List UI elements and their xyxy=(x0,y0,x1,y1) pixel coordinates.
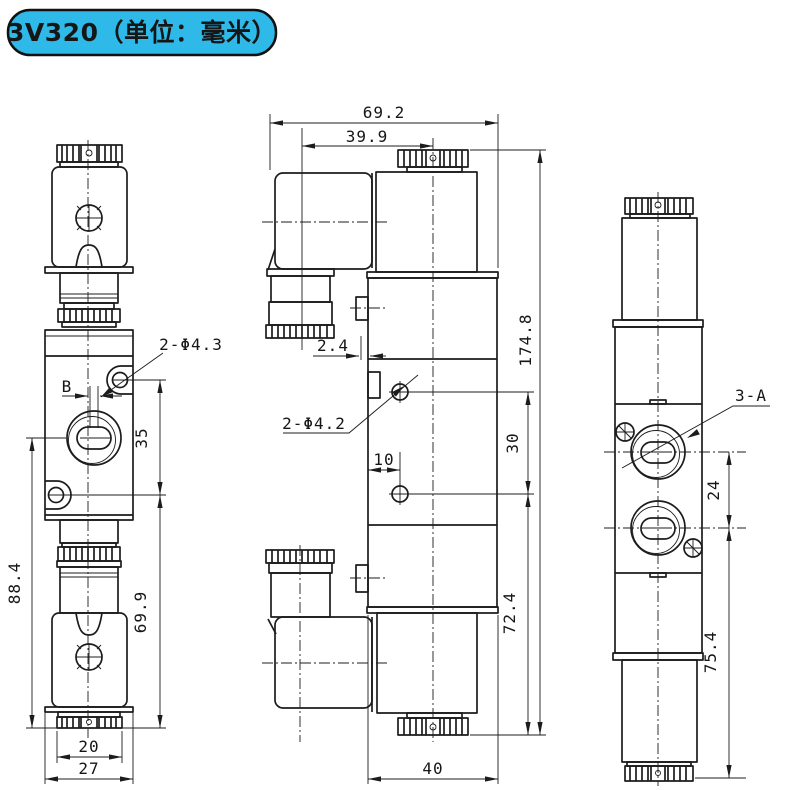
technical-drawing: 3V320（单位：毫米） xyxy=(0,0,790,790)
port-front xyxy=(67,411,121,465)
dim-side-2-4: 2.4 xyxy=(317,336,349,355)
bottom-cap-ribs xyxy=(62,717,116,728)
page-title: 3V320（单位：毫米） xyxy=(7,18,277,47)
title-badge: 3V320（单位：毫米） xyxy=(7,10,277,55)
dim-front-27: 27 xyxy=(78,759,99,778)
end-screw-top-icon xyxy=(616,423,634,441)
dim-side-30: 30 xyxy=(503,432,522,453)
bottom-screw-icon xyxy=(76,644,102,670)
side-override-tab-bottom xyxy=(356,565,368,592)
side-top-coil xyxy=(376,172,477,272)
end-top-solenoid xyxy=(622,218,697,320)
dim-side-72-4: 72.4 xyxy=(500,592,519,635)
dim-front-69-9: 69.9 xyxy=(131,591,150,634)
side-hole-bottom xyxy=(389,483,411,505)
bottom-connector-dome xyxy=(76,613,102,635)
top-screw-icon xyxy=(76,205,102,231)
side-override-tab-top xyxy=(356,297,368,320)
dim-front-20: 20 xyxy=(78,737,99,756)
drawing-canvas: 3V320（单位：毫米） xyxy=(0,0,790,790)
side-view-dimensions: 69.2 39.9 2.4 2-Φ4.2 10 30 72.4 xyxy=(270,103,546,784)
dim-side-10: 10 xyxy=(373,450,394,469)
end-bottom-solenoid xyxy=(622,660,697,762)
top-connector-dome xyxy=(76,245,102,267)
front-view-drawing: 2-Φ4.3 B 35 69.9 88.4 20 xyxy=(5,140,223,784)
dim-end-75-4: 75.4 xyxy=(701,631,720,674)
top-connector-body xyxy=(52,167,127,267)
dim-side-mounting-holes: 2-Φ4.2 xyxy=(282,414,346,433)
dim-side-40: 40 xyxy=(422,759,443,778)
dim-side-174-8: 174.8 xyxy=(516,313,535,366)
dim-end-ports-label: 3-A xyxy=(735,386,767,405)
side-bottom-connector xyxy=(275,617,372,708)
bottom-connector-body xyxy=(52,613,127,707)
dim-side-39-9: 39.9 xyxy=(346,127,389,146)
bottom-coil-ribs xyxy=(64,547,112,561)
top-coil-ribs xyxy=(64,309,112,322)
dim-side-69-2: 69.2 xyxy=(363,103,406,122)
dim-front-88-4: 88.4 xyxy=(5,562,24,605)
end-view-drawing: 3-A 24 75.4 xyxy=(604,192,770,786)
valve-body-side xyxy=(368,278,497,607)
side-bottom-coil xyxy=(377,613,477,713)
dim-end-24: 24 xyxy=(704,479,723,500)
dim-front-mounting-holes: 2-Φ4.3 xyxy=(159,335,223,354)
side-bottom-connector-ribs xyxy=(272,550,327,563)
side-view-drawing: 69.2 39.9 2.4 2-Φ4.2 10 30 72.4 xyxy=(262,103,546,784)
top-cap-ribs xyxy=(62,145,116,162)
end-screw-bottom-icon xyxy=(684,539,702,557)
dim-front-b-label: B xyxy=(62,377,73,396)
dim-front-35: 35 xyxy=(132,427,151,448)
valve-body-front xyxy=(45,330,133,520)
valve-body-end xyxy=(615,327,702,653)
side-top-connector xyxy=(275,173,372,269)
